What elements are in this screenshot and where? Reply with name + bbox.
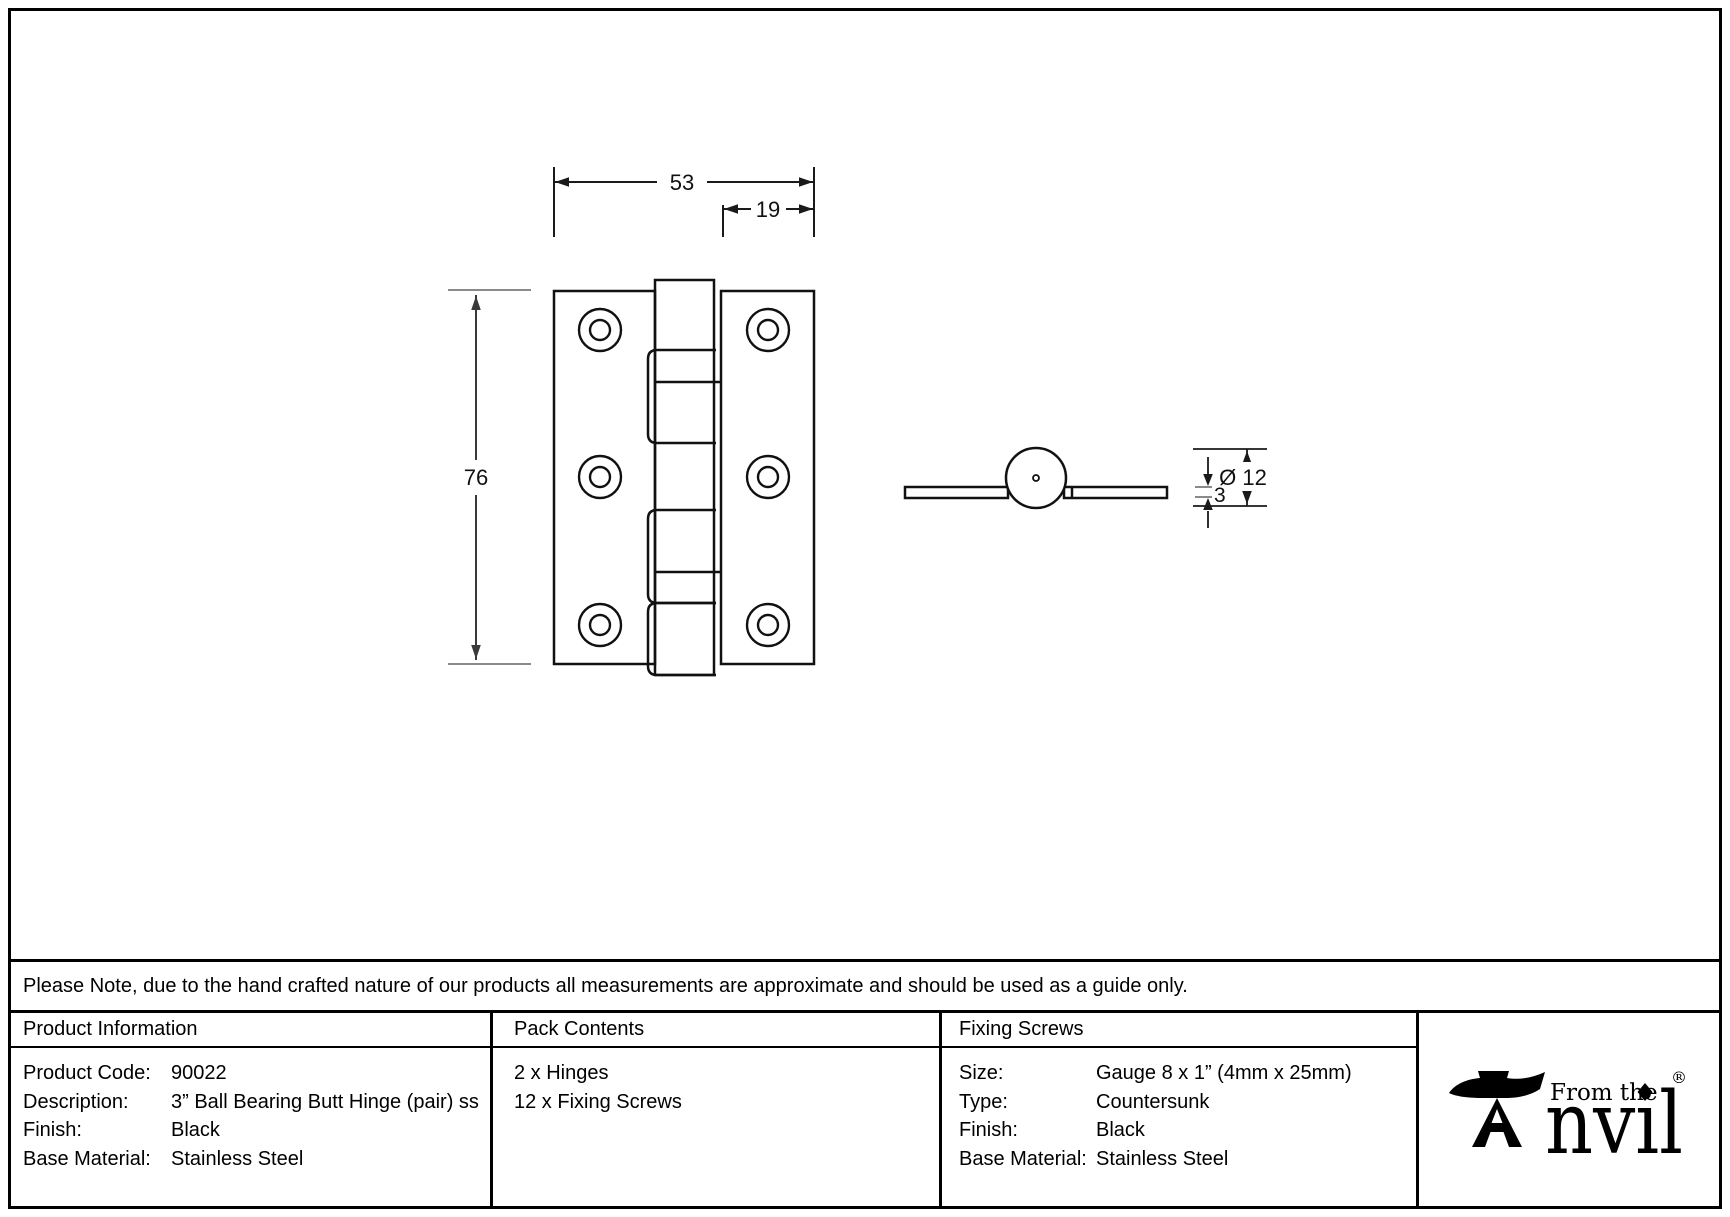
right-leaf-edge [1064,487,1167,498]
product-information-column: Product Information Product Code: 90022 … [11,1013,493,1206]
knuckle-barrel [1006,448,1066,508]
column-header: Product Information [11,1013,490,1048]
field-value: 3” Ball Bearing Butt Hinge (pair) ss [171,1088,479,1117]
table-row: Finish: Black [23,1116,490,1145]
left-leaf-edge [905,487,1008,498]
column-body: Product Code: 90022 Description: 3” Ball… [11,1048,490,1173]
right-leaf [721,291,814,664]
field-value: Stainless Steel [1096,1145,1228,1174]
note-bar: Please Note, due to the hand crafted nat… [11,959,1719,1013]
dim-label-width: 53 [670,170,694,195]
knuckle [655,280,714,675]
table-row: Type: Countersunk [959,1088,1416,1117]
field-label: Base Material: [959,1145,1096,1174]
column-body: 2 x Hinges 12 x Fixing Screws [493,1048,939,1116]
extension-lines [448,290,531,664]
field-value: Countersunk [1096,1088,1209,1117]
field-value: Black [171,1116,220,1145]
field-label: Product Code: [23,1059,171,1088]
table-row: Base Material: Stainless Steel [959,1145,1416,1174]
knuckle-segment [648,350,716,443]
anvil-icon [1449,1071,1545,1147]
field-label: Size: [959,1059,1096,1088]
registered-mark: ® [1671,1068,1687,1087]
technical-drawing: 53 19 76 [11,11,1719,953]
dim-label-diameter: Ø 12 [1219,465,1267,490]
pack-contents-column: Pack Contents 2 x Hinges 12 x Fixing Scr… [493,1013,942,1206]
table-row: Product Code: 90022 [23,1059,490,1088]
field-value: Stainless Steel [171,1145,303,1174]
knuckle-segment [648,510,716,603]
field-label: Finish: [959,1116,1096,1145]
pack-item: 12 x Fixing Screws [514,1088,939,1117]
table-row: Description: 3” Ball Bearing Butt Hinge … [23,1088,490,1117]
pack-item: 2 x Hinges [514,1059,939,1088]
fixing-screws-column: Fixing Screws Size: Gauge 8 x 1” (4mm x … [942,1013,1419,1206]
field-value: Black [1096,1116,1145,1145]
field-value: Gauge 8 x 1” (4mm x 25mm) [1096,1059,1352,1088]
dim-label-height: 76 [464,465,488,490]
side-view-dimensions: Ø 12 3 [1193,449,1270,528]
column-header: Fixing Screws [942,1013,1416,1048]
spec-table: Product Information Product Code: 90022 … [11,1013,1719,1206]
brand-logo-cell: nvil From the ® [1419,1013,1719,1206]
table-row: Base Material: Stainless Steel [23,1145,490,1174]
from-the-anvil-logo: nvil From the ® [1419,1013,1719,1206]
left-leaf [554,291,655,664]
column-body: Size: Gauge 8 x 1” (4mm x 25mm) Type: Co… [942,1048,1416,1173]
field-value: 90022 [171,1059,227,1088]
table-row: Size: Gauge 8 x 1” (4mm x 25mm) [959,1059,1416,1088]
dim-label-thickness: 3 [1214,484,1226,507]
bottom-section: Please Note, due to the hand crafted nat… [11,959,1719,1206]
spec-sheet-page: 53 19 76 [8,8,1722,1209]
screw-holes [579,309,789,646]
column-header: Pack Contents [493,1013,939,1048]
field-label: Type: [959,1088,1096,1117]
dim-label-leaf: 19 [756,197,780,222]
table-row: Finish: Black [959,1116,1416,1145]
field-label: Finish: [23,1116,171,1145]
knuckle-segment [648,603,716,675]
field-label: Description: [23,1088,171,1117]
hinge-front-view [554,280,814,675]
field-label: Base Material: [23,1145,171,1174]
hinge-side-view [905,448,1167,508]
note-text: Please Note, due to the hand crafted nat… [23,975,1188,998]
front-view-dimensions: 53 19 76 [448,167,814,664]
